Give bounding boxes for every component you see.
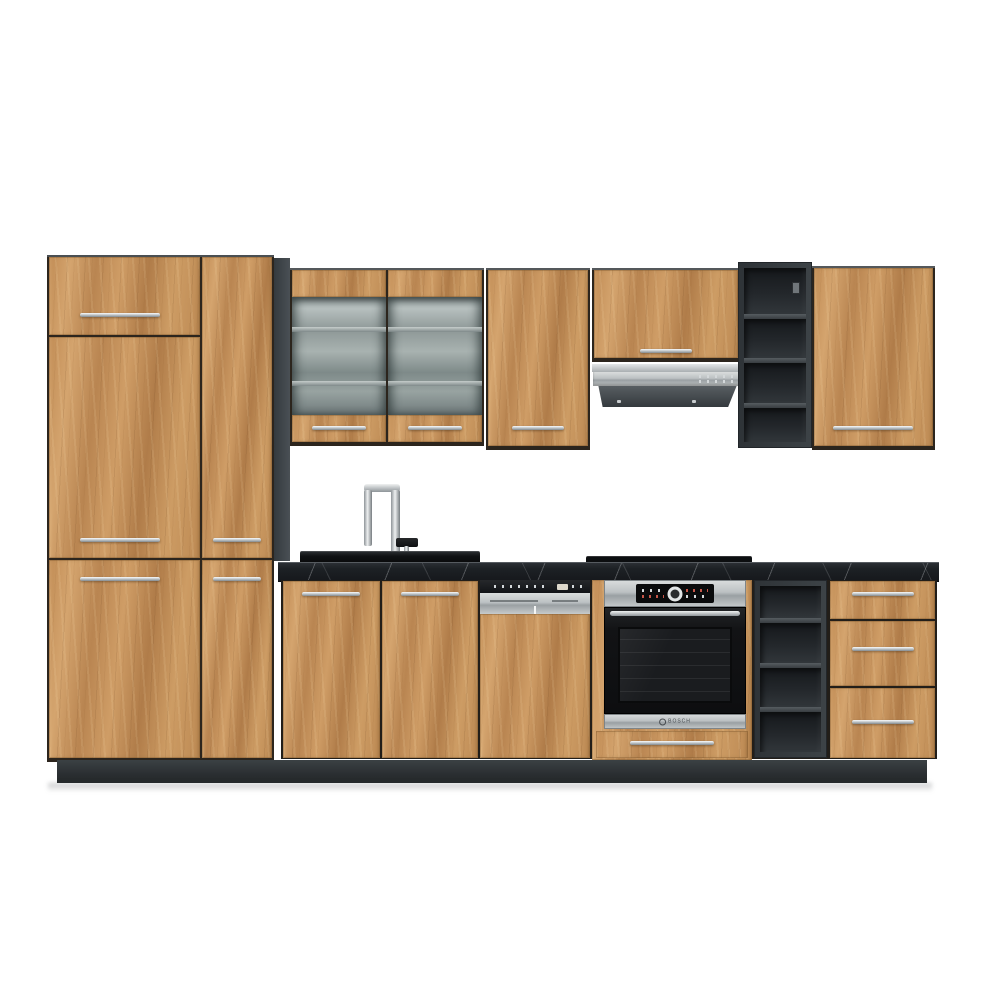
- glass-wall-cabinet-door-right: [388, 270, 482, 442]
- glass-door-left-handle: [312, 426, 366, 430]
- wall-open-shelf-compartments: [744, 268, 806, 442]
- open-shelf-compartment: [744, 319, 806, 359]
- dishwasher-control-strip: [480, 580, 590, 593]
- dishwasher-door-mark: [534, 606, 536, 614]
- glass-wall-cabinet-door-left: [292, 270, 386, 442]
- oven-window: [618, 627, 732, 703]
- oven-control-panel: [604, 580, 746, 607]
- tall-cabinet-door-bottom-handle: [80, 577, 160, 581]
- side-panel-filler: [274, 258, 290, 561]
- wall-cabinet-left-handle: [512, 426, 564, 430]
- dishwasher-display: [557, 584, 568, 590]
- oven-dial-knob: [668, 586, 683, 601]
- glass-door-bottom-rail: [292, 415, 386, 442]
- hood-light: [692, 400, 696, 403]
- drawer-unit-handle-1: [852, 592, 914, 596]
- tall-cabinet-narrow-door-bottom-handle: [213, 577, 261, 581]
- glass-door-bottom-rail: [388, 415, 482, 442]
- sink-base-door-left: [283, 581, 380, 758]
- oven-door-handle: [610, 611, 740, 616]
- oven-brand-logo: BOSCH: [659, 718, 691, 725]
- floor-shadow: [48, 783, 932, 792]
- dishwasher-panel-label: [490, 600, 538, 602]
- drawer-unit-drawer-2: [830, 621, 935, 686]
- oven-indicators-right: [686, 589, 708, 592]
- glass-door-top-rail: [292, 270, 386, 297]
- tall-cabinet-door-top: [49, 257, 200, 335]
- oven-door: [604, 607, 746, 714]
- dishwasher-buttons: [494, 585, 546, 588]
- dishwasher-furniture-front: [480, 614, 590, 758]
- oven-bottom-trim: BOSCH: [604, 714, 746, 729]
- wall-cabinet-left-door: [488, 270, 588, 446]
- tall-cabinet-door-top-handle: [80, 313, 160, 317]
- tall-cabinet-door-middle-handle: [80, 538, 160, 542]
- oven-indicators-left: [642, 595, 664, 598]
- tall-cabinet-door-middle: [49, 337, 200, 558]
- glass-door-right-handle: [408, 426, 462, 430]
- open-shelf-compartment: [744, 408, 806, 442]
- cabinet-shelf-edge: [388, 327, 482, 332]
- open-shelf-compartment: [760, 712, 821, 752]
- worktop: [278, 562, 939, 582]
- sink-base-door-right: [382, 581, 478, 758]
- oven-brand-text: BOSCH: [668, 719, 691, 724]
- cabinet-shelf-edge: [388, 381, 482, 386]
- drawer-unit-drawer-1: [830, 581, 935, 619]
- open-shelf-compartment: [760, 586, 821, 618]
- kitchen-product-photo: BOSCH: [0, 0, 1000, 1000]
- cabinet-shelf-edge: [292, 327, 386, 332]
- sink-base-door-left-handle: [302, 592, 360, 596]
- hood-wall-cabinet-handle: [640, 349, 692, 353]
- range-hood-front-bar: [593, 372, 742, 386]
- oven-housing-drawer-handle: [630, 741, 714, 745]
- tall-cabinet-narrow-door-tall-handle: [213, 538, 261, 542]
- base-open-shelf-compartments: [760, 586, 821, 752]
- hood-light: [617, 400, 621, 403]
- dishwasher-panel-label: [552, 600, 578, 602]
- dishwasher-panel: [480, 593, 590, 614]
- plinth: [57, 760, 927, 783]
- open-shelf-compartment: [760, 668, 821, 708]
- range-hood-top-strip: [592, 364, 742, 372]
- glass-door-top-rail: [388, 270, 482, 297]
- oven-buttons-right: [686, 595, 708, 598]
- cabinet-shelf-edge: [292, 381, 386, 386]
- dishwasher-buttons: [572, 585, 582, 588]
- glass-door-pane: [388, 297, 482, 415]
- oven-buttons-left: [642, 589, 664, 592]
- wall-cabinet-right-handle: [833, 426, 913, 430]
- bosch-ring-icon: [659, 718, 666, 725]
- hood-wall-cabinet-door: [594, 270, 738, 358]
- glass-door-pane: [292, 297, 386, 415]
- sink-base-door-right-handle: [401, 592, 459, 596]
- open-shelf-compartment: [760, 623, 821, 663]
- wall-cabinet-right-door: [814, 268, 933, 446]
- tall-cabinet-narrow-door-bottom: [202, 560, 272, 758]
- range-hood-buttons: [699, 380, 733, 383]
- drawer-unit-handle-2: [852, 647, 914, 651]
- range-hood-underside: [597, 386, 738, 407]
- open-shelf-compartment: [744, 268, 806, 314]
- oven-display: [636, 584, 714, 603]
- range-hood-buttons: [699, 375, 733, 378]
- faucet-spout: [364, 490, 372, 546]
- wall-bracket: [792, 282, 800, 294]
- tall-cabinet-narrow-door-tall: [202, 257, 272, 558]
- open-shelf-compartment: [744, 363, 806, 403]
- drawer-unit-handle-3: [852, 720, 914, 724]
- tall-cabinet-door-bottom: [49, 560, 200, 758]
